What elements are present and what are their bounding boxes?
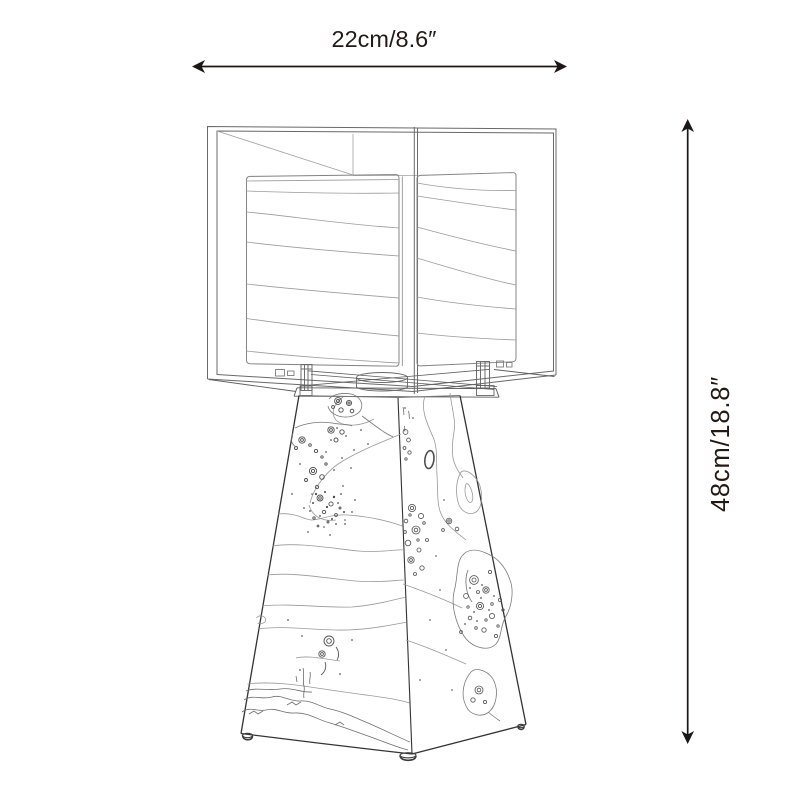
svg-text:22cm/8.6″: 22cm/8.6″ [332,26,437,52]
svg-text:48cm/18.8″: 48cm/18.8″ [707,376,735,512]
